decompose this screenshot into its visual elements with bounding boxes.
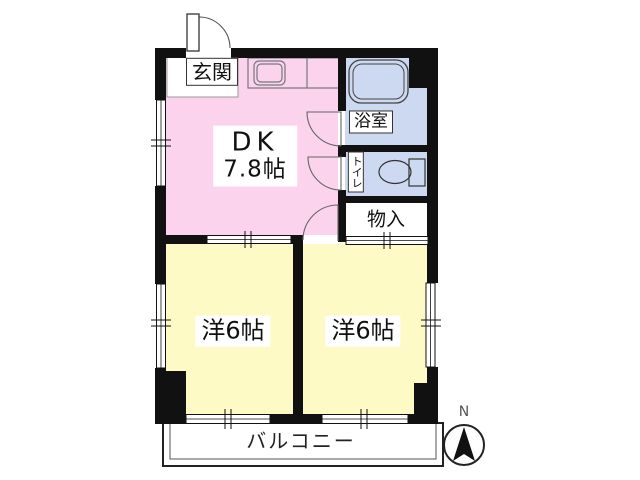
bedroom-left-label: 洋6帖 <box>195 316 270 347</box>
dk-bedroom-right-opening <box>303 235 338 244</box>
entrance-door-swing-icon <box>187 14 230 51</box>
balcony-label: バルコニー <box>246 430 356 452</box>
storage-label: 物入 <box>365 209 407 230</box>
north-label: N <box>459 405 469 421</box>
floorplan-image: 玄関 DK 7.8帖 浴室 トイレ 物入 洋6帖 洋6帖 バルコニー N <box>0 0 640 480</box>
bath-label: 浴室 <box>349 110 393 133</box>
floorplan-drawing <box>0 0 640 480</box>
north-arrow-icon <box>444 425 484 465</box>
dk-name: DK <box>223 129 287 158</box>
bedroom-right-label: 洋6帖 <box>325 316 400 347</box>
dk-size: 7.8帖 <box>223 158 287 184</box>
toilet-label: トイレ <box>348 152 364 193</box>
dk-label: DK 7.8帖 <box>213 126 297 187</box>
entrance-label: 玄関 <box>186 58 238 86</box>
